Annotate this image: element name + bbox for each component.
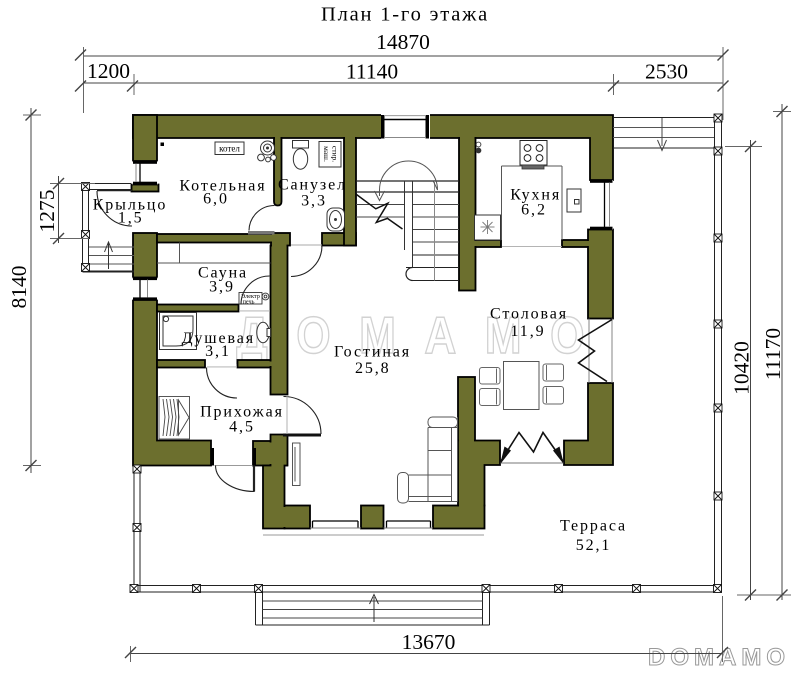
svg-text:11,9: 11,9: [510, 323, 545, 340]
svg-text:6,2: 6,2: [521, 202, 547, 219]
svg-text:План 1-го этажа: План 1-го этажа: [321, 4, 489, 26]
svg-text:6,0: 6,0: [203, 191, 229, 208]
svg-text:котел: котел: [219, 144, 240, 154]
svg-text:14870: 14870: [376, 30, 430, 54]
svg-text:Санузел: Санузел: [278, 177, 347, 194]
svg-text:Столовая: Столовая: [490, 306, 568, 323]
svg-text:DOMAMO: DOMAMO: [648, 644, 790, 671]
svg-text:52,1: 52,1: [576, 537, 612, 554]
svg-text:11170: 11170: [761, 328, 785, 380]
svg-text:13670: 13670: [402, 630, 456, 654]
svg-text:печь: печь: [243, 299, 255, 306]
svg-text:2530: 2530: [645, 60, 688, 84]
svg-text:8140: 8140: [7, 266, 31, 309]
svg-text:3,1: 3,1: [205, 343, 231, 360]
svg-text:3,3: 3,3: [301, 193, 327, 210]
svg-text:10420: 10420: [730, 341, 754, 395]
svg-text:маш.: маш.: [322, 146, 331, 162]
svg-text:Терраса: Терраса: [560, 518, 627, 535]
svg-text:Гостиная: Гостиная: [334, 344, 411, 361]
svg-text:3,9: 3,9: [209, 279, 235, 296]
svg-text:11140: 11140: [346, 60, 398, 84]
svg-text:1200: 1200: [87, 59, 130, 83]
svg-text:25,8: 25,8: [355, 360, 391, 377]
svg-text:4,5: 4,5: [229, 419, 255, 436]
svg-text:1,5: 1,5: [118, 210, 144, 227]
svg-text:1275: 1275: [35, 190, 59, 233]
